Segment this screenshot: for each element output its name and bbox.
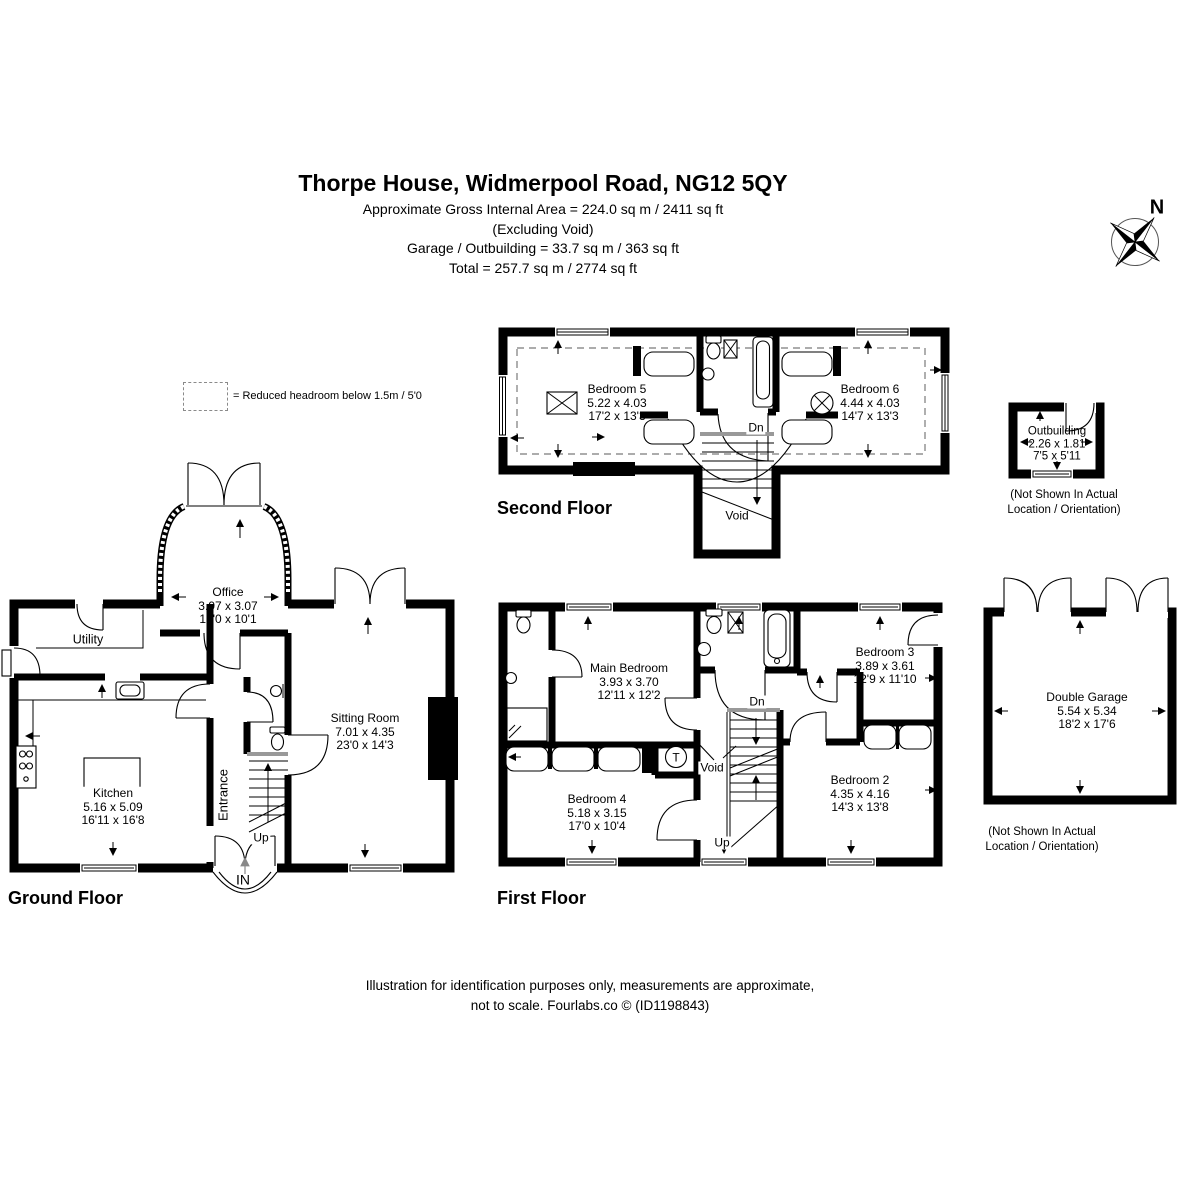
- room-label-bedroom6: Bedroom 6 4.44 x 4.03 14'7 x 13'3: [840, 383, 899, 424]
- ground-floor-title: Ground Floor: [8, 888, 123, 909]
- note-line: (Not Shown In Actual: [985, 825, 1098, 840]
- room-label-office: Office 3.97 x 3.07 13'0 x 10'1: [198, 586, 257, 627]
- room-name: Outbuilding: [1028, 425, 1086, 438]
- room-name: Kitchen: [81, 787, 144, 801]
- floorplan-page: Thorpe House, Widmerpool Road, NG12 5QY …: [0, 0, 1200, 1200]
- stairs-up-label: Up: [712, 837, 731, 850]
- room-label-bedroom3: Bedroom 3 3.89 x 3.61 12'9 x 11'10: [853, 646, 916, 687]
- room-size-metric: 3.89 x 3.61: [853, 659, 916, 673]
- outbuilding-note: (Not Shown In Actual Location / Orientat…: [1007, 488, 1120, 517]
- note-line: Location / Orientation): [1007, 503, 1120, 518]
- compass-icon: [1090, 192, 1190, 292]
- room-name: Sitting Room: [331, 712, 400, 726]
- room-size-imperial: 17'2 x 13'3: [587, 410, 646, 424]
- room-label-entrance: Entrance: [217, 769, 230, 821]
- tank-label: T: [672, 752, 679, 765]
- stairs-dn-label: Dn: [746, 422, 765, 435]
- room-name: Double Garage: [1046, 691, 1127, 705]
- room-label-bedroom4: Bedroom 4 5.18 x 3.15 17'0 x 10'4: [567, 793, 626, 834]
- room-size-imperial: 12'9 x 11'10: [853, 673, 916, 687]
- header-total-line: Total = 257.7 sq m / 2774 sq ft: [298, 259, 787, 279]
- header-excluding-line: (Excluding Void): [298, 220, 787, 240]
- room-size-metric: 5.16 x 5.09: [81, 800, 144, 814]
- stairs-dn-label: Dn: [747, 696, 766, 709]
- compass-north-label: N: [1150, 197, 1164, 220]
- room-label-utility: Utility: [73, 634, 104, 647]
- room-size-metric: 3.93 x 3.70: [590, 675, 668, 689]
- room-label-double-garage: Double Garage 5.54 x 5.34 18'2 x 17'6: [1046, 691, 1127, 732]
- room-size-metric: 4.44 x 4.03: [840, 396, 899, 410]
- note-line: (Not Shown In Actual: [1007, 488, 1120, 503]
- room-size-imperial: 23'0 x 14'3: [331, 739, 400, 753]
- room-size-metric: 5.54 x 5.34: [1046, 704, 1127, 718]
- window: [1031, 468, 1073, 480]
- room-label-bedroom2: Bedroom 2 4.35 x 4.16 14'3 x 13'8: [830, 774, 889, 815]
- footer: Illustration for identification purposes…: [366, 976, 814, 1016]
- room-size-imperial: 18'2 x 17'6: [1046, 718, 1127, 732]
- legend-text: = Reduced headroom below 1.5m / 5'0: [233, 390, 422, 402]
- room-size-metric: 5.18 x 3.15: [567, 806, 626, 820]
- second-floor-title: Second Floor: [497, 498, 612, 519]
- room-size-imperial: 16'11 x 16'8: [81, 814, 144, 828]
- first-floor-title: First Floor: [497, 888, 586, 909]
- stairs-up-label: Up: [251, 832, 270, 845]
- note-line: Location / Orientation): [985, 840, 1098, 855]
- void-label: Void: [725, 510, 748, 523]
- room-label-sitting-room: Sitting Room 7.01 x 4.35 23'0 x 14'3: [331, 712, 400, 753]
- void-label: Void: [698, 762, 725, 775]
- legend-reduced-headroom-box: [183, 382, 228, 411]
- second-floor-plan: [490, 320, 960, 565]
- garage-note: (Not Shown In Actual Location / Orientat…: [985, 825, 1098, 854]
- room-size-metric: 7.01 x 4.35: [331, 725, 400, 739]
- room-size-imperial: 12'11 x 12'2: [590, 689, 668, 703]
- room-size-imperial: 14'3 x 13'8: [830, 801, 889, 815]
- room-size-imperial: 17'0 x 10'4: [567, 820, 626, 834]
- header-area-line: Approximate Gross Internal Area = 224.0 …: [298, 200, 787, 220]
- room-size-metric: 3.97 x 3.07: [198, 599, 257, 613]
- room-name: Bedroom 5: [587, 383, 646, 397]
- room-label-bedroom5: Bedroom 5 5.22 x 4.03 17'2 x 13'3: [587, 383, 646, 424]
- room-size-metric: 4.35 x 4.16: [830, 787, 889, 801]
- room-size-metric: 2.26 x 1.81: [1028, 438, 1086, 451]
- room-label-main-bedroom: Main Bedroom 3.93 x 3.70 12'11 x 12'2: [590, 662, 668, 703]
- room-name: Main Bedroom: [590, 662, 668, 676]
- room-size-imperial: 7'5 x 5'11: [1028, 450, 1086, 463]
- header: Thorpe House, Widmerpool Road, NG12 5QY …: [298, 170, 787, 278]
- room-label-outbuilding: Outbuilding 2.26 x 1.81 7'5 x 5'11: [1028, 425, 1086, 463]
- header-garage-line: Garage / Outbuilding = 33.7 sq m / 363 s…: [298, 239, 787, 259]
- room-name: Office: [198, 586, 257, 600]
- room-label-kitchen: Kitchen 5.16 x 5.09 16'11 x 16'8: [79, 787, 146, 828]
- room-name: Bedroom 6: [840, 383, 899, 397]
- entrance-in-label: IN: [236, 874, 250, 887]
- room-name: Bedroom 2: [830, 774, 889, 788]
- skylight-icon: [547, 392, 577, 414]
- room-size-metric: 5.22 x 4.03: [587, 396, 646, 410]
- footer-line: not to scale. Fourlabs.co © (ID1198843): [366, 996, 814, 1016]
- light-icon: [811, 392, 833, 414]
- ground-floor-plan: [0, 450, 480, 920]
- page-title: Thorpe House, Widmerpool Road, NG12 5QY: [298, 170, 787, 196]
- room-name: Bedroom 3: [853, 646, 916, 660]
- room-name: Bedroom 4: [567, 793, 626, 807]
- room-size-imperial: 14'7 x 13'3: [840, 410, 899, 424]
- footer-line: Illustration for identification purposes…: [366, 976, 814, 996]
- room-size-imperial: 13'0 x 10'1: [198, 613, 257, 627]
